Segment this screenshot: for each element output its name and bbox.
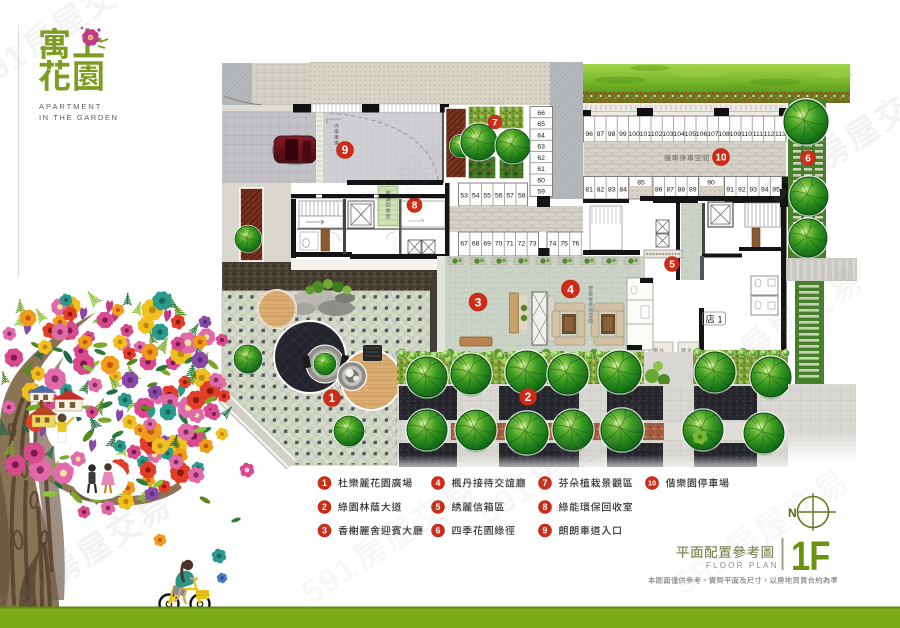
svg-text:66: 66 [537, 110, 545, 117]
svg-text:1: 1 [718, 315, 723, 325]
svg-text:8: 8 [543, 502, 548, 512]
svg-text:6: 6 [436, 526, 441, 536]
svg-text:53: 53 [460, 193, 468, 200]
svg-text:10: 10 [648, 479, 656, 488]
svg-text:4: 4 [436, 478, 441, 488]
svg-text:92: 92 [738, 187, 746, 194]
svg-text:112: 112 [764, 131, 775, 138]
svg-text:107: 107 [707, 131, 719, 138]
svg-text:3: 3 [322, 526, 327, 536]
svg-text:1: 1 [322, 478, 327, 488]
svg-text:65: 65 [537, 121, 545, 128]
svg-text:97: 97 [597, 131, 605, 138]
svg-text:IN THE GARDEN: IN THE GARDEN [39, 113, 119, 122]
svg-text:5: 5 [669, 260, 675, 271]
svg-text:1: 1 [329, 393, 336, 405]
svg-text:74: 74 [549, 241, 557, 248]
svg-text:68: 68 [472, 241, 480, 248]
svg-text:73: 73 [529, 241, 537, 248]
svg-text:70: 70 [495, 241, 503, 248]
svg-text:1F: 1F [791, 534, 830, 579]
svg-text:85: 85 [637, 180, 645, 187]
svg-text:2: 2 [322, 502, 327, 512]
svg-text:90: 90 [707, 180, 715, 187]
svg-text:APARTMENT: APARTMENT [39, 102, 102, 111]
svg-text:67: 67 [460, 241, 468, 248]
svg-text:87: 87 [666, 187, 674, 194]
svg-text:106: 106 [696, 131, 708, 138]
svg-text:4: 4 [567, 282, 574, 296]
svg-text:108: 108 [718, 131, 730, 138]
svg-text:88: 88 [678, 187, 686, 194]
svg-text:62: 62 [537, 155, 545, 162]
svg-text:111: 111 [753, 131, 764, 138]
svg-text:110: 110 [741, 131, 752, 138]
svg-text:61: 61 [537, 166, 545, 173]
svg-text:96: 96 [585, 131, 593, 138]
svg-text:105: 105 [685, 131, 697, 138]
svg-text:57: 57 [506, 193, 514, 200]
svg-text:3: 3 [475, 295, 482, 309]
svg-text:2: 2 [525, 392, 531, 404]
svg-text:9: 9 [342, 145, 348, 157]
svg-text:69: 69 [483, 241, 491, 248]
svg-text:60: 60 [537, 177, 545, 184]
svg-text:64: 64 [537, 132, 545, 139]
svg-text:8: 8 [412, 201, 418, 212]
svg-text:59: 59 [537, 189, 545, 196]
svg-text:104: 104 [673, 131, 685, 138]
svg-text:9: 9 [543, 526, 548, 536]
svg-text:82: 82 [597, 187, 605, 194]
svg-text:56: 56 [495, 193, 503, 200]
svg-text:86: 86 [655, 187, 663, 194]
svg-text:84: 84 [619, 187, 627, 194]
svg-text:91: 91 [726, 187, 734, 194]
svg-text:71: 71 [506, 241, 514, 248]
svg-text:83: 83 [608, 187, 616, 194]
svg-text:109: 109 [730, 131, 742, 138]
svg-text:72: 72 [518, 241, 526, 248]
svg-text:63: 63 [537, 144, 545, 151]
svg-text:10: 10 [716, 153, 727, 164]
svg-text:101: 101 [640, 131, 652, 138]
svg-text:58: 58 [518, 193, 526, 200]
svg-text:93: 93 [749, 187, 757, 194]
svg-text:54: 54 [472, 193, 480, 200]
svg-text:103: 103 [662, 131, 674, 138]
svg-text:76: 76 [572, 241, 580, 248]
svg-text:89: 89 [689, 187, 697, 194]
svg-text:98: 98 [608, 131, 616, 138]
svg-text:81: 81 [585, 187, 593, 194]
svg-text:99: 99 [619, 131, 627, 138]
svg-text:102: 102 [651, 131, 663, 138]
svg-text:100: 100 [628, 131, 640, 138]
svg-text:55: 55 [483, 193, 491, 200]
svg-text:75: 75 [560, 241, 568, 248]
